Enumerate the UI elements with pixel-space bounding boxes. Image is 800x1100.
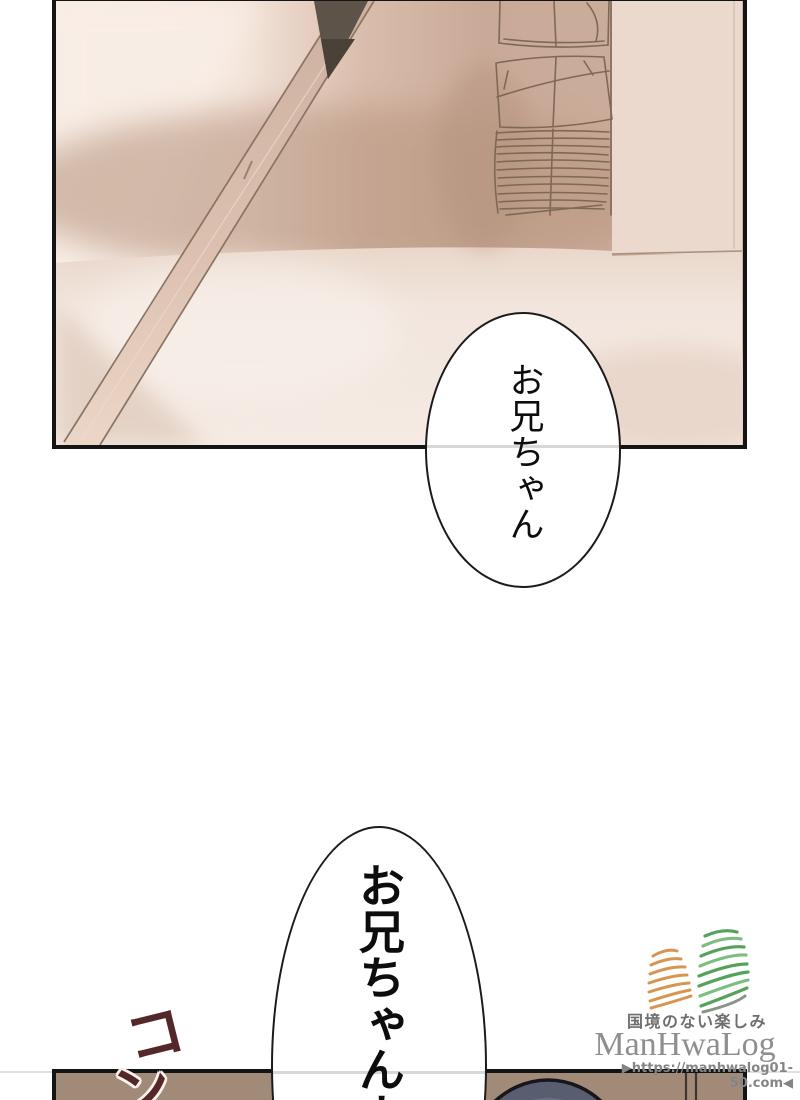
speech-bubble-top: お兄ちゃん bbox=[425, 312, 621, 588]
watermark-url: ▶https://manhwalog01-50.com◀ bbox=[560, 1061, 793, 1091]
panel-top-artwork bbox=[56, 1, 743, 445]
fanned-book-pages-icon bbox=[641, 924, 753, 1014]
comic-panel-top bbox=[52, 0, 747, 449]
comic-page: お兄ちゃん お兄ちゃんー コ ン 国境のない楽しみ Man bbox=[0, 0, 800, 1100]
sfx-knock-char-2: ン bbox=[108, 1058, 174, 1100]
speech-text: お兄ちゃん bbox=[506, 362, 541, 542]
speech-text-shout: お兄ちゃんー bbox=[356, 862, 402, 1100]
watermark-brand: ManHwaLog bbox=[570, 1026, 800, 1064]
speech-bubble-bottom: お兄ちゃんー bbox=[271, 826, 487, 1100]
